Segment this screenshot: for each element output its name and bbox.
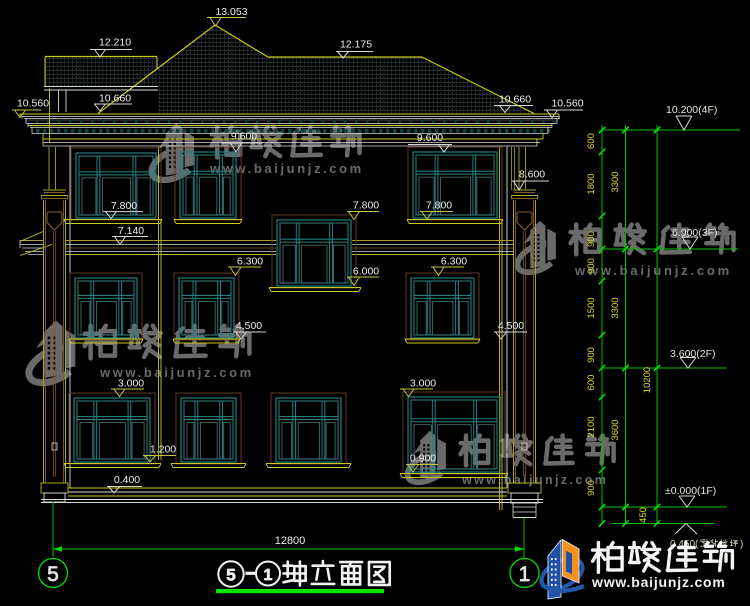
svg-text:5: 5 <box>47 563 59 586</box>
svg-text:6.300: 6.300 <box>237 256 263 268</box>
svg-text:7.140: 7.140 <box>118 225 144 237</box>
svg-text:10.560: 10.560 <box>551 98 583 110</box>
svg-text:6.300: 6.300 <box>441 256 467 268</box>
svg-text:12.175: 12.175 <box>340 39 372 51</box>
svg-text:0.900: 0.900 <box>410 453 436 465</box>
svg-text:12.210: 12.210 <box>99 37 131 49</box>
svg-text:9.600: 9.600 <box>417 132 443 144</box>
svg-text:600: 600 <box>586 133 597 149</box>
svg-text:600: 600 <box>586 375 597 391</box>
svg-text:1: 1 <box>264 567 273 584</box>
svg-text:3.600(2F): 3.600(2F) <box>670 348 716 360</box>
svg-text:3300: 3300 <box>610 171 621 192</box>
svg-text:10.560: 10.560 <box>17 98 49 110</box>
svg-text:4.500: 4.500 <box>236 320 262 332</box>
svg-text:1.200: 1.200 <box>150 444 176 456</box>
svg-text:7.800: 7.800 <box>353 200 379 212</box>
svg-text:13.053: 13.053 <box>215 6 247 18</box>
svg-text:450: 450 <box>638 507 649 523</box>
svg-text:3600: 3600 <box>610 419 621 440</box>
svg-text:3.000: 3.000 <box>410 378 436 390</box>
svg-text:1500: 1500 <box>586 297 597 318</box>
svg-text:10.200(4F): 10.200(4F) <box>666 104 717 116</box>
svg-text:www.baijunjz.com: www.baijunjz.com <box>574 263 732 278</box>
svg-text:10.660: 10.660 <box>499 94 531 106</box>
svg-text:±0.000(1F): ±0.000(1F) <box>665 485 716 497</box>
svg-text:0.400: 0.400 <box>114 474 140 486</box>
svg-text:10200: 10200 <box>642 367 653 393</box>
svg-text:3.000: 3.000 <box>118 378 144 390</box>
svg-text:3300: 3300 <box>610 297 621 318</box>
svg-text:10.660: 10.660 <box>99 93 131 105</box>
svg-text:9.600: 9.600 <box>231 131 257 143</box>
svg-text:www.baijunjz.com: www.baijunjz.com <box>591 574 726 590</box>
svg-text:7.800: 7.800 <box>111 200 137 212</box>
svg-text:8.600: 8.600 <box>519 169 545 181</box>
svg-text:4.500: 4.500 <box>498 320 524 332</box>
svg-text:1800: 1800 <box>586 173 597 194</box>
svg-text:900: 900 <box>586 231 597 247</box>
svg-text:7.800: 7.800 <box>426 200 452 212</box>
svg-text:900: 900 <box>586 480 597 496</box>
svg-text:5: 5 <box>226 566 235 585</box>
svg-text:900: 900 <box>586 258 597 274</box>
svg-text:12800: 12800 <box>275 535 306 547</box>
svg-text:900: 900 <box>586 347 597 363</box>
svg-text:6.000: 6.000 <box>353 266 379 278</box>
svg-text:1: 1 <box>519 563 531 586</box>
svg-text:2100: 2100 <box>586 416 597 437</box>
svg-text:): ) <box>740 539 743 550</box>
